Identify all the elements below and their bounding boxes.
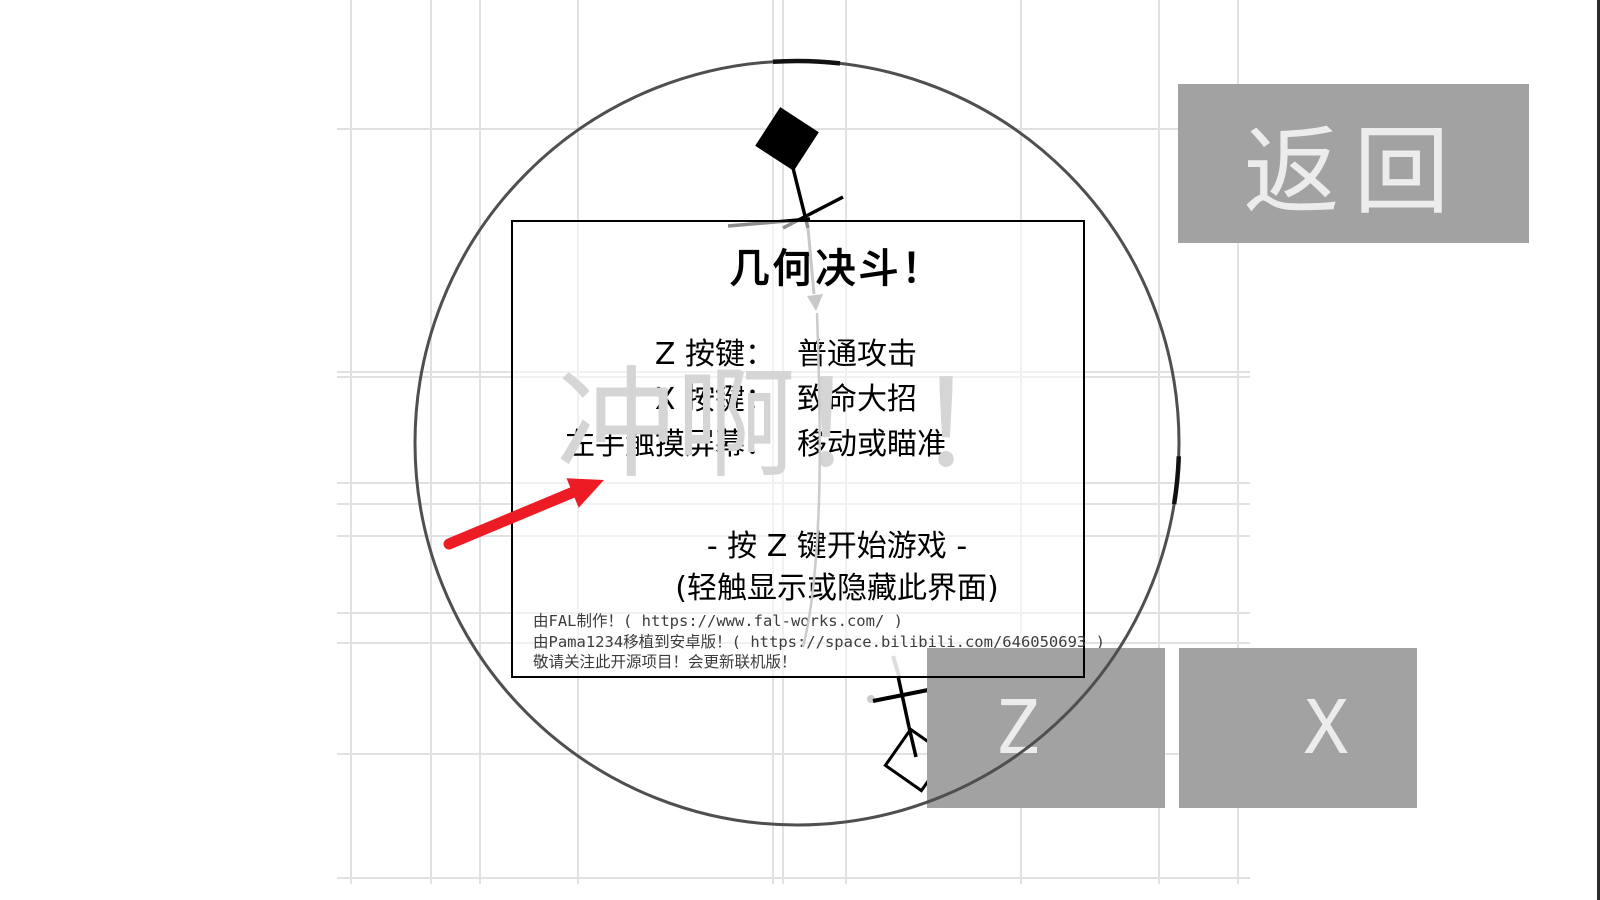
back-button[interactable]: 返回 <box>1178 84 1529 243</box>
credit-line: 由FAL制作！( https://www.fal-works.com/ ) <box>533 611 1105 632</box>
player-figure-top <box>728 107 843 228</box>
grid-line-vertical <box>430 0 432 884</box>
grid-line-vertical <box>350 0 352 884</box>
back-button-label: 返回 <box>1244 94 1464 233</box>
grid-line-horizontal <box>337 128 1250 130</box>
x-button-label: X <box>1304 685 1349 771</box>
panel-border-segment <box>1083 648 1085 678</box>
z-attack-button[interactable]: Z <box>927 648 1165 808</box>
start-game-hint: - 按 Z 键开始游戏 - <box>552 521 1122 565</box>
arena-circle-highlight-right <box>1174 456 1179 504</box>
x-special-button[interactable]: X <box>1179 648 1417 808</box>
figure-hand-dot <box>867 695 875 703</box>
background-shout-text: 冲啊！！ <box>556 366 1036 486</box>
figure-arm <box>873 689 933 701</box>
z-button-label: Z <box>995 685 1040 771</box>
figure-body <box>793 168 808 228</box>
square-head-filled <box>755 107 819 171</box>
game-screen: 几何决斗！ Z 按键： 普通攻击 X 按键： 致命大招 左手触摸屏幕： 移动或瞄… <box>0 0 1600 900</box>
grid-line-horizontal <box>337 877 1250 879</box>
grid-line-vertical <box>479 0 481 884</box>
panel-border-segment <box>927 676 1085 678</box>
figure-body <box>898 676 909 727</box>
toggle-ui-hint: (轻触显示或隐藏此界面) <box>552 563 1122 607</box>
panel-title: 几何决斗！ <box>552 236 1122 294</box>
